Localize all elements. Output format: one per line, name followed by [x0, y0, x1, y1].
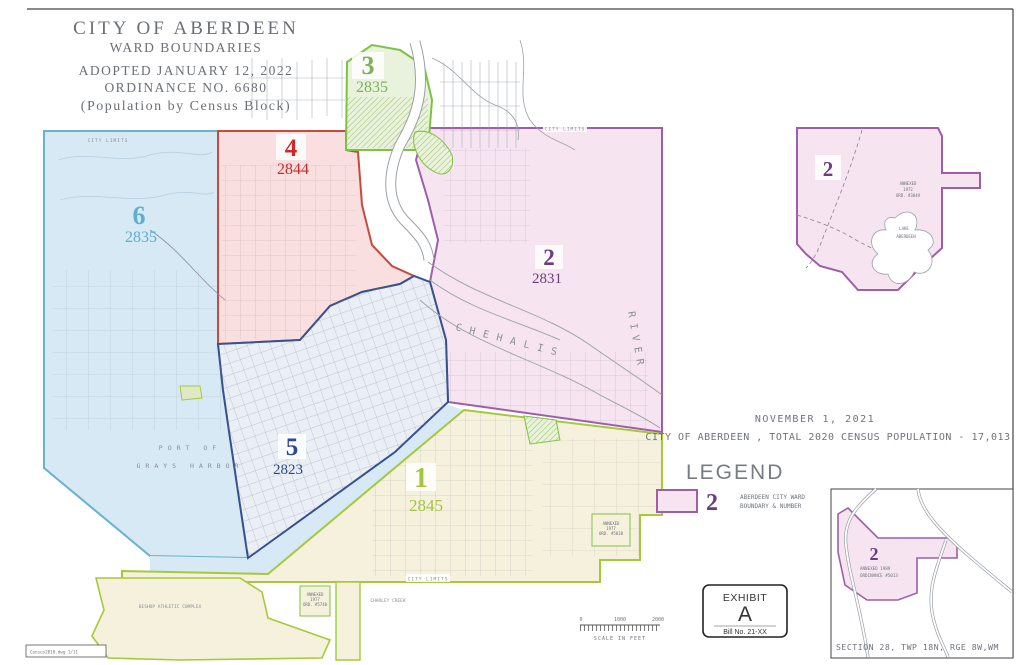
exhibit-bill: Bill No. 21-XX — [723, 629, 767, 636]
ward-1-population: 2845 — [409, 496, 443, 515]
annex1-line3: ORD. #5740 — [303, 602, 328, 607]
inset-top-right: 2 ANNEXED 1972 ORD. #3049 LAKE ABERDEEN — [797, 128, 980, 290]
legend-title: LEGEND — [686, 461, 784, 484]
exhibit-box: EXHIBIT A Bill No. 21-XX — [703, 585, 787, 637]
title-line1: CITY OF ABERDEEN — [73, 18, 299, 39]
city-limits-label-nw: CITY LIMITS — [88, 138, 129, 144]
ward-6-streets — [52, 270, 222, 430]
exhibit-letter: A — [738, 603, 752, 626]
scale-tick-0: 0 — [579, 617, 582, 623]
legend-swatch — [657, 490, 697, 512]
bishop-complex-label: BISHOP ATHLETIC COMPLEX — [139, 604, 202, 610]
inset-br-ward-number: 2 — [870, 544, 879, 564]
inset-br-annex-line2: ORDINANCE #5013 — [860, 573, 898, 578]
legend-label-line2: BOUNDARY & NUMBER — [740, 503, 802, 510]
charley-creek-label: CHARLEY CREEK — [370, 598, 406, 604]
annex2-line3: ORD. #5038 — [599, 531, 624, 536]
ward-3-number: 3 — [362, 51, 375, 80]
lake-label-line1: LAKE — [899, 226, 909, 231]
map-sheet: 3 2835 4 2844 6 2835 2 2831 5 2823 1 284… — [0, 0, 1024, 665]
scale-tick-1000: 1000 — [614, 617, 626, 623]
ward-1-number: 1 — [414, 463, 428, 494]
inset-bottom-right: 2 ANNEXED 1989 ORDINANCE #5013 SECTION 2… — [831, 489, 1013, 658]
ward-5-population: 2823 — [273, 462, 303, 478]
ward-map-svg: 3 2835 4 2844 6 2835 2 2831 5 2823 1 284… — [0, 0, 1024, 665]
ward-4-number: 4 — [285, 135, 298, 162]
city-limits-label-s: CITY LIMITS — [408, 577, 449, 583]
ward-2-number: 2 — [543, 245, 555, 270]
inset-tr-annex-line1: ANNEXED — [900, 181, 917, 186]
census-note: CITY OF ABERDEEN , TOTAL 2020 CENSUS POP… — [645, 432, 1010, 443]
bishop-complex-area — [92, 578, 330, 660]
title-line5: (Population by Census Block) — [81, 99, 291, 114]
ward-3-population: 2835 — [356, 79, 388, 96]
file-note-text: Census2010.dwg 1/11 — [30, 650, 78, 655]
title-line2: WARD BOUNDARIES — [110, 40, 263, 55]
inset-tr-annex-line2: 1972 — [903, 187, 913, 192]
title-line4: ORDINANCE NO. 6680 — [104, 80, 267, 95]
section-label: SECTION 28, TWP 18N, RGE 8W,WM — [836, 642, 999, 652]
ward-4-population: 2844 — [277, 161, 309, 178]
charley-creek-annex-strip — [336, 582, 360, 660]
inset-br-annex-line1: ANNEXED 1989 — [860, 566, 891, 571]
ward-6-population: 2835 — [125, 229, 157, 246]
inset-tr-annex-line3: ORD. #3049 — [896, 193, 921, 198]
ward-5-number: 5 — [286, 434, 299, 461]
ward-6-number: 6 — [133, 201, 146, 230]
lake-label-line2: ABERDEEN — [896, 234, 916, 239]
legend-sample-number: 2 — [706, 490, 718, 516]
grays-harbor-label: GRAYS HARBOR — [137, 462, 244, 470]
legend-label-line1: ABERDEEN CITY WARD — [740, 494, 805, 501]
scale-bar: 0 1000 2000 SCALE IN FEET — [579, 617, 664, 642]
inset-tr-ward-number: 2 — [823, 157, 834, 181]
city-limits-label-ne: CITY LIMITS — [545, 127, 586, 133]
title-block: CITY OF ABERDEEN WARD BOUNDARIES ADOPTED… — [73, 18, 299, 114]
ward-2-population: 2831 — [532, 271, 562, 287]
scale-tick-2000: 2000 — [652, 617, 664, 623]
date-note: NOVEMBER 1, 2021 — [755, 414, 875, 425]
port-of-label: PORT OF — [159, 444, 221, 452]
title-line3: ADOPTED JANUARY 12, 2022 — [79, 63, 294, 78]
scale-caption: SCALE IN FEET — [594, 636, 646, 642]
